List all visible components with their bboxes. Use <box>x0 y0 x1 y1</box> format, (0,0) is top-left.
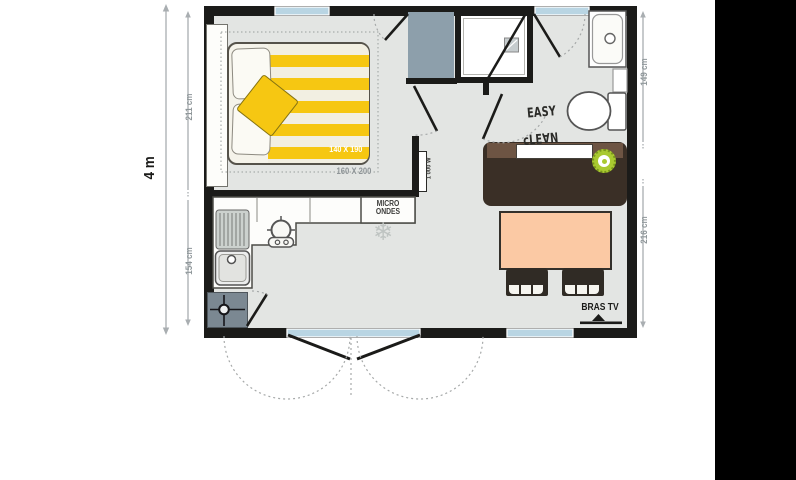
window-bottom <box>507 329 573 337</box>
window-top-left <box>275 7 329 15</box>
water-heater-symbol <box>210 295 245 326</box>
dimension-bathroom-depth: 149 cm <box>640 53 650 90</box>
bed-size-label: 140 X 190 <box>320 145 363 154</box>
microwave-label: MICRO ONDES <box>366 200 410 217</box>
scale-label: 4 m <box>142 146 158 189</box>
bay-door-leaf-left <box>288 335 350 359</box>
faucet <box>228 256 236 264</box>
letterbox-band <box>715 0 796 480</box>
shower <box>461 15 527 80</box>
dimension-kitchen-depth: 154 cm <box>185 242 195 279</box>
heater-power-label: 1 000 W <box>427 148 434 189</box>
wardrobe-door <box>385 14 408 40</box>
easy-clean-line1: EASY <box>511 104 557 122</box>
bay-door-leaf-right <box>357 335 420 359</box>
bathroom-vanity <box>589 11 626 67</box>
easy-clean-line2: cLE∀N <box>513 131 559 149</box>
tv-bracket-label: BRAS TV <box>578 303 622 314</box>
easy-clean-logo: EASY cLE∀N <box>510 90 560 162</box>
plan-linework <box>0 0 796 480</box>
snowflake-icon: ❄ <box>373 220 393 245</box>
tv-bracket-icon <box>580 314 622 324</box>
bay-door-glazing <box>287 329 420 337</box>
dimension-bedroom-depth: 211 cm <box>185 88 195 125</box>
window-top-right <box>535 7 589 15</box>
dimension-living-depth: 216 cm <box>640 211 650 248</box>
bathroom-door <box>483 94 502 139</box>
toilet <box>568 69 628 130</box>
bedroom-door <box>414 86 437 131</box>
toilet-door <box>534 14 560 57</box>
bed-option-label: 160 X 200 <box>334 167 375 176</box>
floor-plan: 4 m 211 cm 154 cm 149 cm 216 cm 140 X 19… <box>0 0 796 480</box>
entry-door <box>247 294 267 326</box>
